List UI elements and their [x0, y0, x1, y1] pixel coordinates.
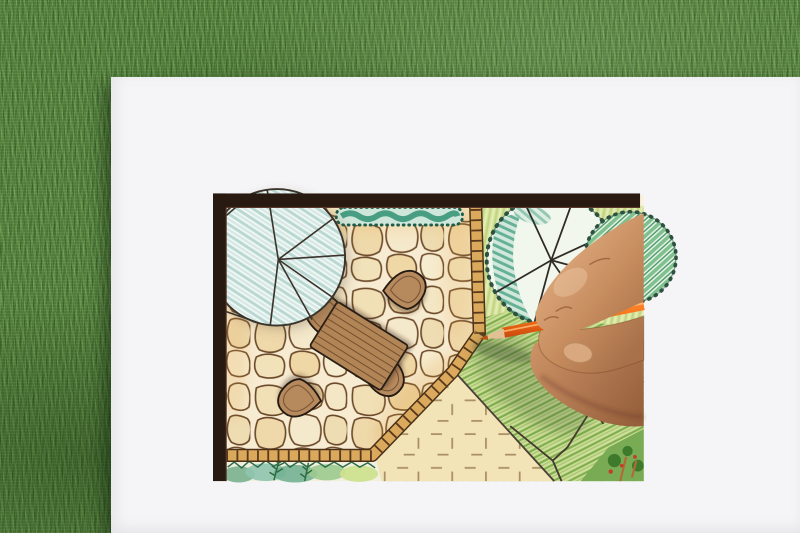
photo-scene [0, 0, 800, 533]
planting-strip [223, 460, 384, 483]
garden-plan-drawing [213, 143, 800, 533]
hedge-strip [336, 207, 462, 225]
